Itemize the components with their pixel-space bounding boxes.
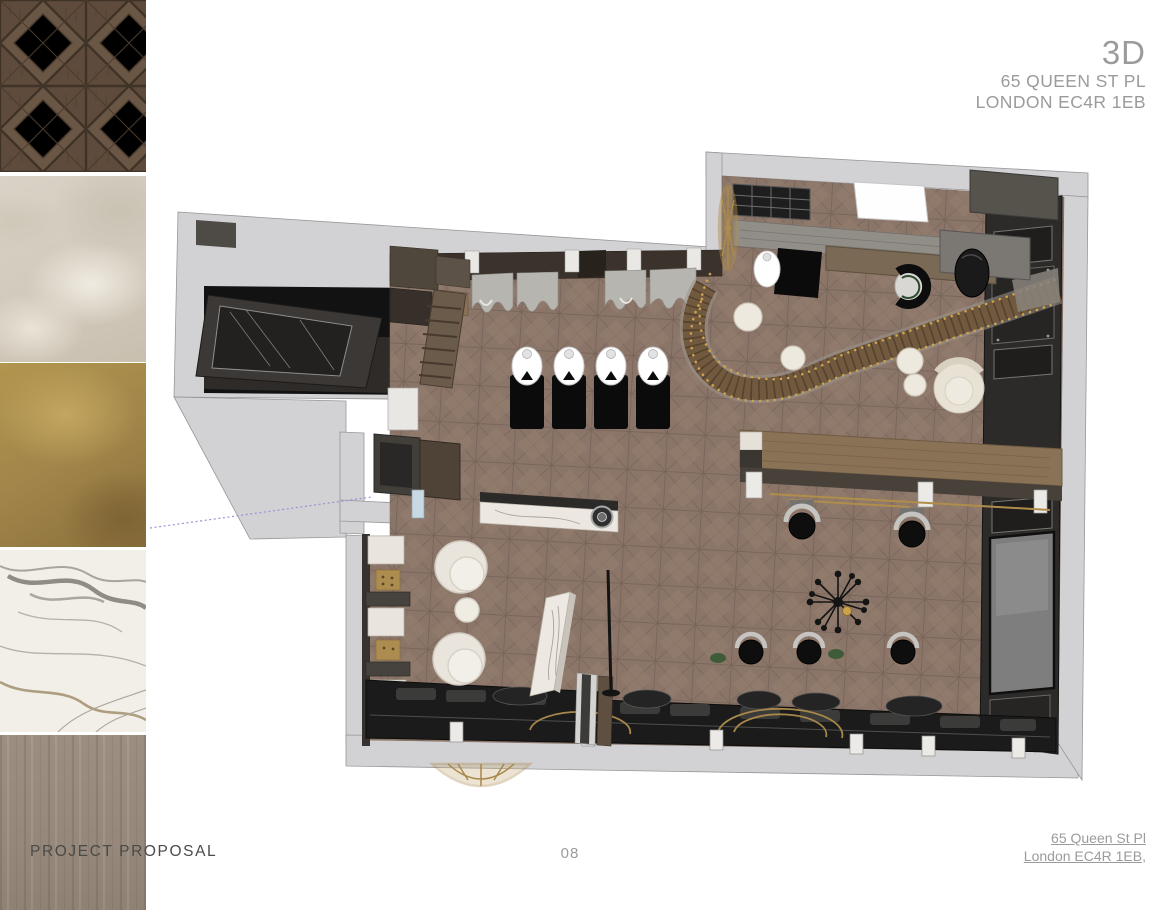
vestibule-cabinet-inner (380, 442, 412, 488)
proposal-slide: { "header": { "title": "3D", "address_li… (0, 0, 1176, 910)
wall-frame-3 (994, 345, 1052, 379)
barber-chair (594, 347, 628, 429)
tv-glare (996, 539, 1048, 616)
top-right-chest (970, 170, 1058, 220)
white-column (388, 388, 418, 430)
header-address-line1: 65 QUEEN ST PL (976, 72, 1146, 90)
footer-address-line1: 65 Queen St Pl (1024, 830, 1146, 848)
plant (828, 649, 844, 659)
footer-address: 65 Queen St Pl London EC4R 1EB, (1024, 830, 1146, 866)
header-address-line2: LONDON EC4R 1EB (976, 93, 1146, 111)
barber-chair (510, 347, 544, 429)
marble-end-block (740, 432, 762, 450)
wall-left-connector (174, 397, 346, 539)
swatch-antique-brass-gold (0, 363, 146, 547)
marble-texture (0, 550, 146, 732)
oval-side-table (955, 249, 989, 297)
gold-wheel (719, 186, 737, 270)
gold-fan-canopy (432, 764, 530, 786)
glass-door (412, 490, 424, 518)
page-number: 08 (470, 845, 670, 862)
swatch-calacatta-white-marble (0, 550, 146, 732)
curved-lounge-chair (895, 269, 929, 305)
plant (710, 653, 726, 663)
footer-address-line2: London EC4R 1EB, (1024, 848, 1146, 866)
swatch-dark-walnut-versailles-parquet (0, 0, 146, 172)
mirror-dark-panel (578, 250, 606, 278)
barber-chair (636, 347, 670, 429)
skylight (854, 182, 928, 222)
material-swatch-strip (0, 0, 146, 910)
swatch-beige-plaster-stone (0, 176, 146, 362)
barber-chair (552, 347, 586, 429)
wing-step (196, 220, 236, 248)
header-block: 3D 65 QUEEN ST PL LONDON EC4R 1EB (976, 36, 1146, 111)
floor-plan-3d-view (150, 140, 1110, 800)
dark-end-block (740, 450, 762, 469)
parquet-texture (0, 0, 146, 172)
swatch-grey-oak-wood (0, 735, 146, 910)
vestibule-cabinet-wood (420, 440, 460, 500)
cream-armchair (934, 361, 984, 413)
sputnik-chandelier (807, 571, 870, 634)
proposal-label: PROJECT PROPOSAL (30, 843, 217, 861)
page-title: 3D (976, 36, 1146, 69)
